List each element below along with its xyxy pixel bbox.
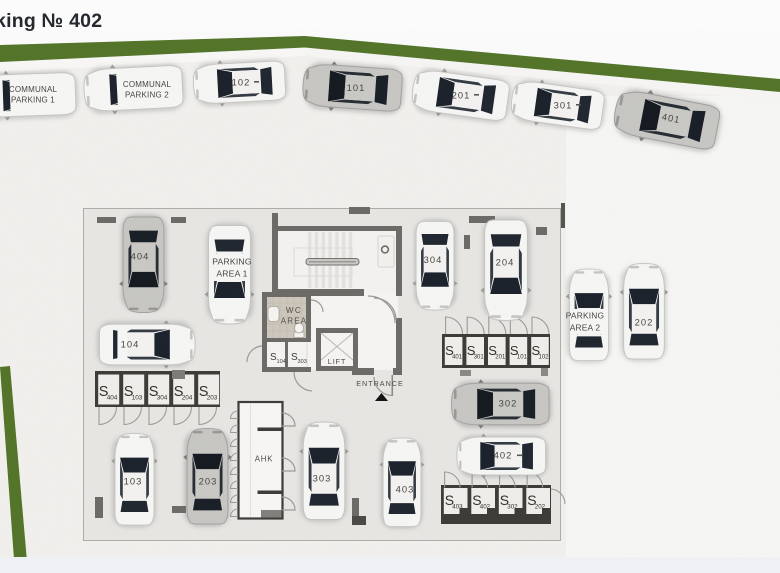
svg-text:404: 404 bbox=[107, 395, 118, 402]
svg-text:204: 204 bbox=[496, 257, 515, 268]
svg-text:COMMUNAL: COMMUNAL bbox=[9, 85, 58, 94]
svg-text:AREA 2: AREA 2 bbox=[570, 323, 601, 333]
svg-text:102: 102 bbox=[232, 77, 251, 88]
svg-text:102: 102 bbox=[539, 355, 550, 361]
svg-text:103: 103 bbox=[132, 395, 143, 402]
svg-text:AREA: AREA bbox=[281, 317, 308, 326]
svg-text:LIFT: LIFT bbox=[328, 357, 346, 366]
svg-text:104: 104 bbox=[277, 359, 286, 365]
svg-text:Parking № 402: Parking № 402 bbox=[0, 10, 102, 32]
svg-text:104: 104 bbox=[121, 339, 140, 350]
svg-text:PARKING: PARKING bbox=[566, 311, 604, 321]
svg-text:PARKING: PARKING bbox=[212, 257, 252, 267]
svg-text:304: 304 bbox=[424, 254, 443, 265]
svg-text:ENTRANCE: ENTRANCE bbox=[356, 379, 404, 388]
svg-text:403: 403 bbox=[396, 484, 415, 495]
svg-text:401: 401 bbox=[452, 355, 463, 361]
svg-text:202: 202 bbox=[535, 504, 546, 511]
svg-text:403: 403 bbox=[452, 504, 463, 511]
svg-text:101: 101 bbox=[517, 355, 528, 361]
svg-text:AHK: AHK bbox=[255, 455, 273, 464]
svg-text:202: 202 bbox=[635, 317, 654, 328]
svg-text:402: 402 bbox=[494, 450, 513, 461]
svg-text:404: 404 bbox=[131, 251, 150, 262]
svg-text:302: 302 bbox=[499, 398, 518, 409]
svg-text:PARKING 1: PARKING 1 bbox=[11, 96, 55, 105]
svg-text:201: 201 bbox=[495, 355, 506, 361]
svg-text:301: 301 bbox=[554, 100, 573, 111]
svg-text:402: 402 bbox=[480, 504, 491, 511]
svg-text:201: 201 bbox=[452, 90, 471, 101]
svg-text:204: 204 bbox=[182, 395, 193, 402]
svg-text:203: 203 bbox=[207, 395, 218, 402]
svg-text:PARKING 2: PARKING 2 bbox=[125, 91, 169, 100]
svg-text:101: 101 bbox=[347, 82, 366, 93]
svg-text:WC: WC bbox=[286, 306, 302, 315]
svg-text:302: 302 bbox=[507, 504, 518, 511]
svg-text:203: 203 bbox=[199, 476, 218, 487]
svg-text:304: 304 bbox=[157, 395, 168, 402]
svg-text:COMMUNAL: COMMUNAL bbox=[123, 80, 172, 89]
svg-text:301: 301 bbox=[474, 355, 485, 361]
svg-text:103: 103 bbox=[124, 476, 143, 487]
svg-text:303: 303 bbox=[313, 473, 332, 484]
svg-text:AREA 1: AREA 1 bbox=[216, 269, 247, 279]
svg-text:303: 303 bbox=[298, 359, 307, 365]
